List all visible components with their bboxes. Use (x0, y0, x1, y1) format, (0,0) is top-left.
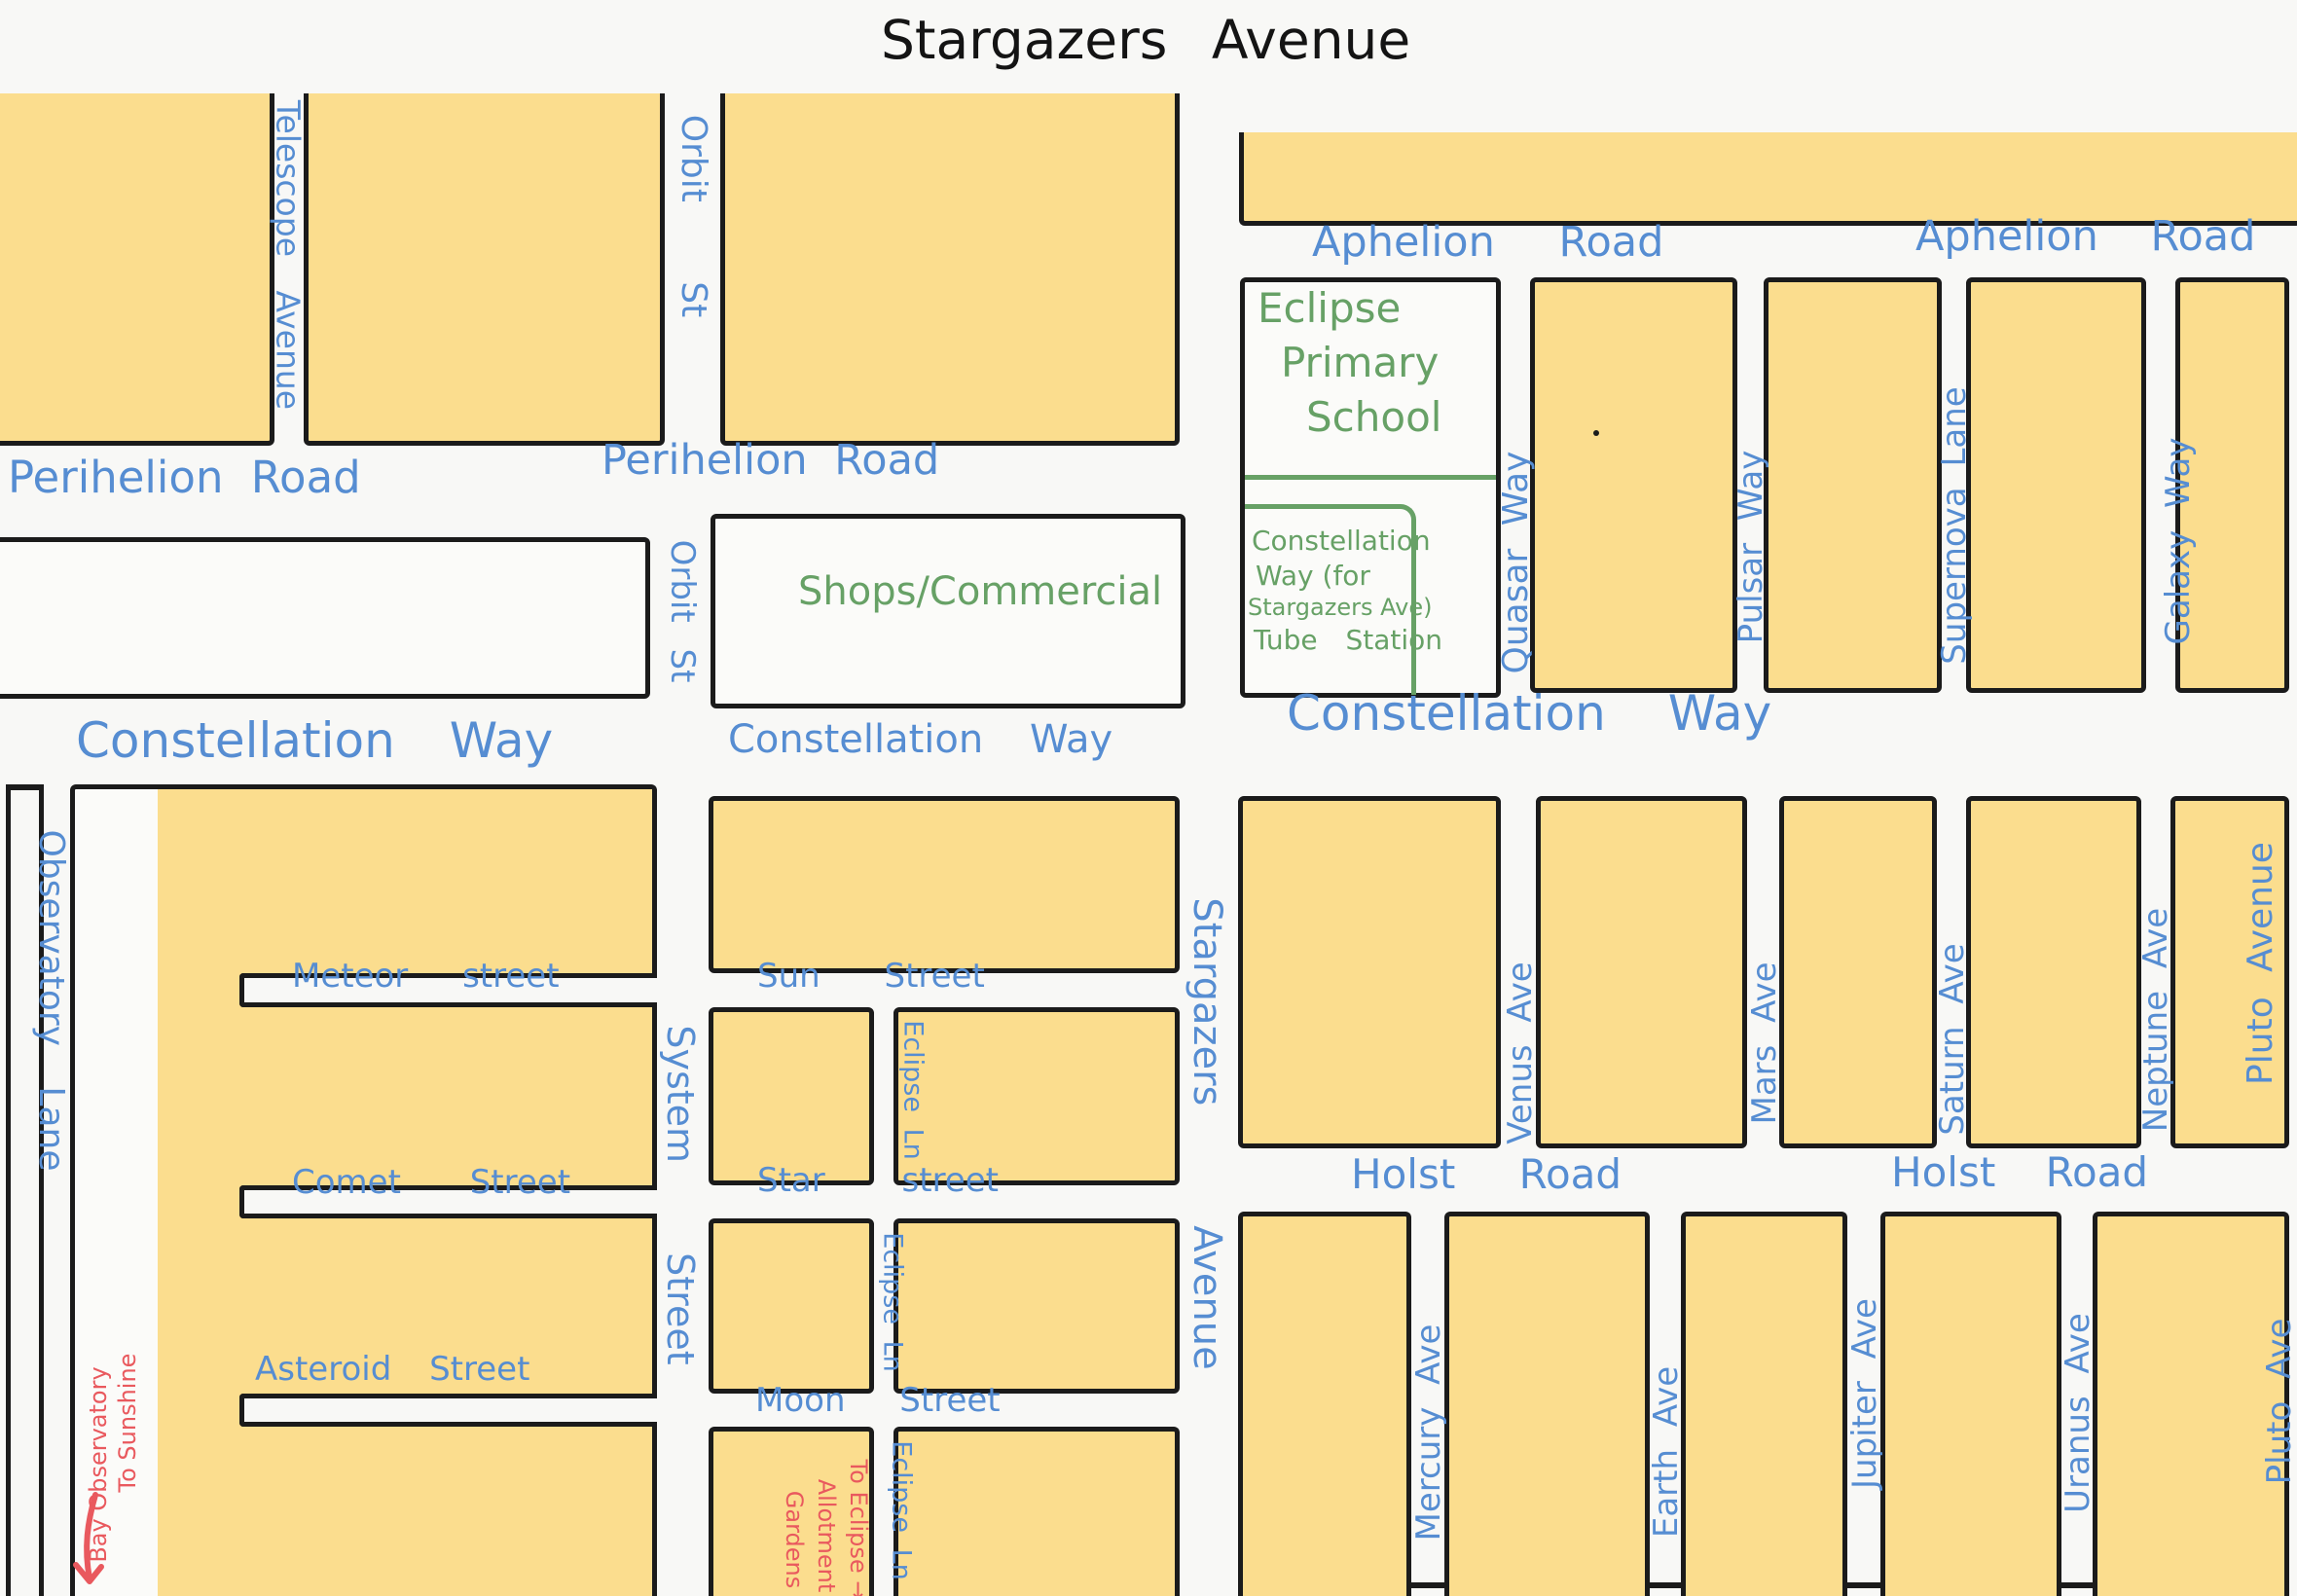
road-label-neptune-ave: Neptune Ave (2139, 908, 2172, 1132)
map-title: Stargazers Avenue (881, 14, 1410, 67)
road-label-pluto-avenue-north: Pluto Avenue (2243, 842, 2279, 1085)
road-label-quasar-way: Quasar Way (1499, 452, 1534, 674)
city-block (709, 796, 1180, 973)
place-label-school-line2: Primary (1281, 343, 1439, 383)
road-label-venus-ave: Venus Ave (1504, 961, 1537, 1143)
road-label-sun-street: Sun Street (757, 960, 985, 993)
city-block (1530, 277, 1737, 693)
empty-block (0, 537, 650, 699)
road-label-supernova-lane: Supernova Lane (1938, 386, 1971, 664)
city-block (1764, 277, 1942, 693)
road-label-aphelion-east: Aphelion Road (1915, 216, 2255, 258)
road-label-constellation-center: Constellation Way (728, 720, 1112, 759)
road-label-mercury-ave: Mercury Ave (1412, 1324, 1445, 1542)
city-block (1880, 1212, 2061, 1596)
road-label-constellation-east: Constellation Way (1287, 689, 1771, 738)
street-end-cap (1650, 1582, 1681, 1588)
city-block (0, 93, 274, 446)
note-label-allotment-line2: Allotment (815, 1479, 838, 1593)
city-block (709, 1218, 874, 1394)
city-block (1238, 1212, 1411, 1596)
road-label-mars-ave: Mars Ave (1748, 962, 1781, 1125)
road-label-eclipse-ln-3: Eclipse Ln (889, 1440, 915, 1579)
road-label-jupiter-ave: Jupiter Ave (1848, 1298, 1881, 1489)
map-edge-line (6, 784, 44, 790)
road-label-orbit-st-south: Orbit St (666, 540, 699, 683)
city-block (893, 1007, 1180, 1185)
city-block (1444, 1212, 1650, 1596)
sunshine-arrow-icon (68, 1489, 117, 1591)
road-label-uranus-ave: Uranus Ave (2061, 1313, 2095, 1513)
road-label-meteor-street: Meteor street (292, 960, 560, 993)
city-block (1536, 796, 1747, 1148)
street-asteroid (239, 1394, 657, 1427)
place-label-shops: Shops/Commercial (798, 572, 1162, 611)
road-label-stargazers-avenue-vertical: Stargazers Avenue (1187, 897, 1226, 1369)
city-block (1779, 796, 1937, 1148)
road-label-aphelion-west: Aphelion Road (1312, 222, 1663, 264)
road-label-eclipse-ln-1: Eclipse Ln (900, 1020, 927, 1159)
road-label-orbit-st-north: Orbit St (675, 115, 711, 318)
road-label-observatory-lane: Observatory Lane (33, 829, 68, 1171)
road-label-holst-west: Holst Road (1351, 1154, 1622, 1195)
note-label-allotment-line3: Gardens (783, 1491, 806, 1588)
city-block (1966, 277, 2146, 693)
road-label-earth-ave: Earth Ave (1650, 1366, 1683, 1538)
road-label-star-street: Star street (757, 1164, 999, 1197)
place-label-tube-line2: Way (for (1256, 562, 1370, 590)
street-end-cap (1411, 1582, 1444, 1588)
school-divider-line (1245, 475, 1496, 480)
road-label-holst-east: Holst Road (1891, 1152, 2148, 1193)
city-block (1681, 1212, 1847, 1596)
city-block (1238, 796, 1501, 1148)
city-block (304, 93, 665, 446)
city-block (1966, 796, 2141, 1148)
city-block (720, 93, 1180, 446)
road-label-galaxy-way: Galaxy Way (2162, 438, 2195, 645)
hand-drawn-street-map: Stargazers Avenue Per (0, 0, 2297, 1596)
note-label-sunshine-line1: To Sunshine (116, 1354, 139, 1493)
road-label-constellation-west: Constellation Way (76, 716, 553, 765)
place-label-school-line1: Eclipse (1258, 288, 1401, 329)
map-edge-line (6, 784, 11, 1596)
road-label-telescope-avenue: Telescope Avenue (273, 100, 305, 410)
road-label-pulsar-way: Pulsar Way (1734, 451, 1768, 644)
place-label-school-line3: School (1306, 397, 1441, 438)
road-label-eclipse-ln-2: Eclipse Ln (880, 1232, 906, 1371)
street-end-cap (2061, 1582, 2093, 1588)
road-label-moon-street: Moon Street (755, 1384, 1001, 1417)
road-label-asteroid-street: Asteroid Street (255, 1353, 529, 1386)
city-block (709, 1007, 874, 1185)
note-label-allotment-line1: To Eclipse → (847, 1460, 870, 1596)
road-label-system-street: System Street (662, 1025, 699, 1364)
road-label-comet-street: Comet Street (292, 1166, 570, 1199)
ink-dot (1593, 430, 1599, 436)
city-block (893, 1427, 1180, 1596)
road-label-perihelion-west: Perihelion Road (8, 455, 361, 499)
place-label-tube-line3: Stargazers Ave) (1248, 596, 1432, 619)
place-label-tube-line4: Tube Station (1254, 627, 1442, 654)
road-label-pluto-ave-south: Pluto Ave (2263, 1319, 2296, 1485)
street-end-cap (1847, 1582, 1880, 1588)
road-label-perihelion-east: Perihelion Road (602, 440, 939, 482)
city-block (893, 1218, 1180, 1394)
place-label-tube-line1: Constellation (1252, 527, 1431, 555)
road-label-saturn-ave: Saturn Ave (1936, 943, 1969, 1135)
